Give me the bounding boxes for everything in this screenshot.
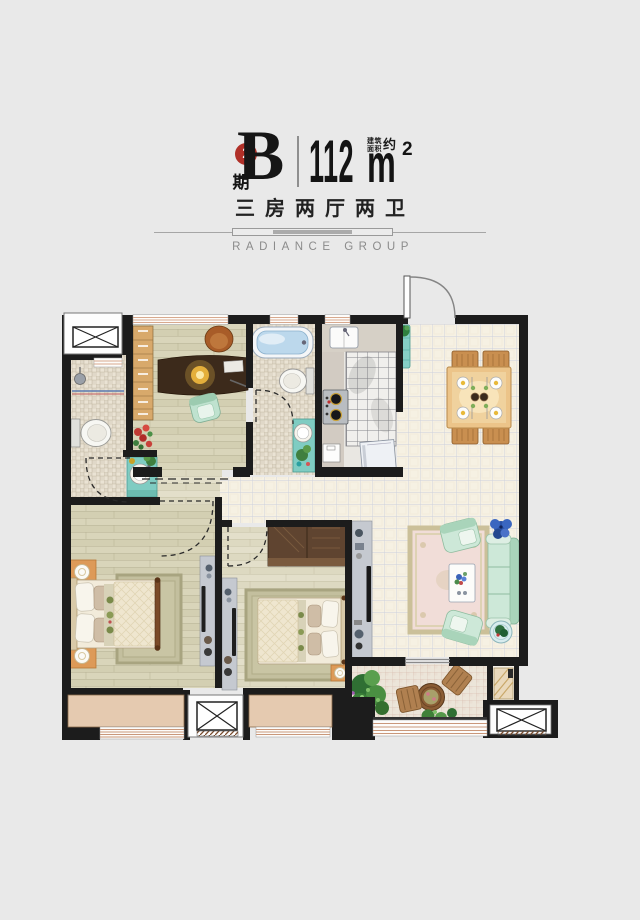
tv-icon [202, 586, 206, 632]
window [270, 315, 298, 325]
shaft-icon [188, 695, 243, 737]
fridge-icon [360, 440, 396, 472]
shaft-icon [490, 705, 551, 735]
appliance-box [323, 444, 340, 462]
balcony-chair [396, 685, 423, 713]
sofa [486, 534, 519, 628]
equipment-platform [494, 668, 513, 699]
toilet-icon [280, 368, 315, 394]
wardrobe [268, 521, 346, 566]
double-bed [70, 577, 160, 651]
desk-paper [224, 360, 244, 372]
window [325, 315, 350, 325]
stove-icon [323, 390, 348, 424]
window [94, 358, 122, 367]
tv-cabinet-living [352, 521, 372, 658]
side-table [490, 621, 512, 643]
bay-window [249, 695, 332, 737]
tv-icon [367, 566, 372, 622]
balcony-window [373, 717, 487, 736]
coffee-table [449, 564, 475, 602]
window [133, 315, 228, 325]
floorplan [0, 0, 640, 920]
bathtub-icon [252, 327, 313, 358]
toilet-icon [71, 419, 111, 447]
shower-icon [75, 374, 86, 385]
tv-icon [232, 608, 236, 656]
entrance-door [404, 276, 455, 318]
double-bed [258, 596, 347, 667]
tv-cabinet-bedroom2 [222, 578, 237, 690]
balcony-sliding-door [405, 660, 450, 663]
elevator-shaft-icon [64, 313, 122, 354]
vanity-counter [293, 419, 315, 472]
tv-cabinet-master [200, 556, 215, 666]
